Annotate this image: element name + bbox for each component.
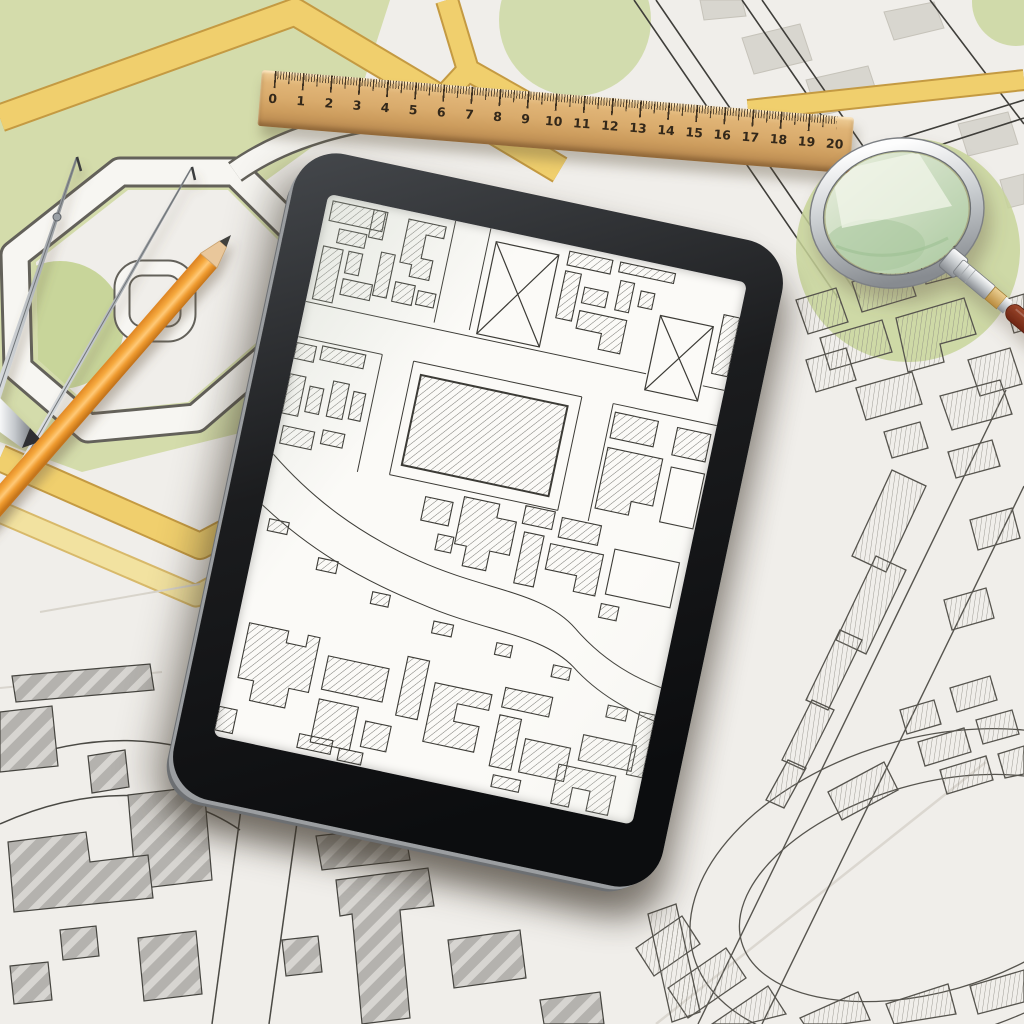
scene: 01234567891011121314151617181920 — [0, 0, 1024, 1024]
magnifier-handle — [952, 259, 1024, 411]
compass-screw — [53, 213, 61, 221]
handle-red-grip — [1002, 301, 1024, 411]
compass-needle-tip — [77, 157, 81, 171]
pencil-body — [0, 253, 217, 559]
magnifying-glass — [796, 122, 1024, 411]
compass-needle-tip — [192, 167, 195, 180]
drafting-tools — [0, 0, 1024, 1024]
